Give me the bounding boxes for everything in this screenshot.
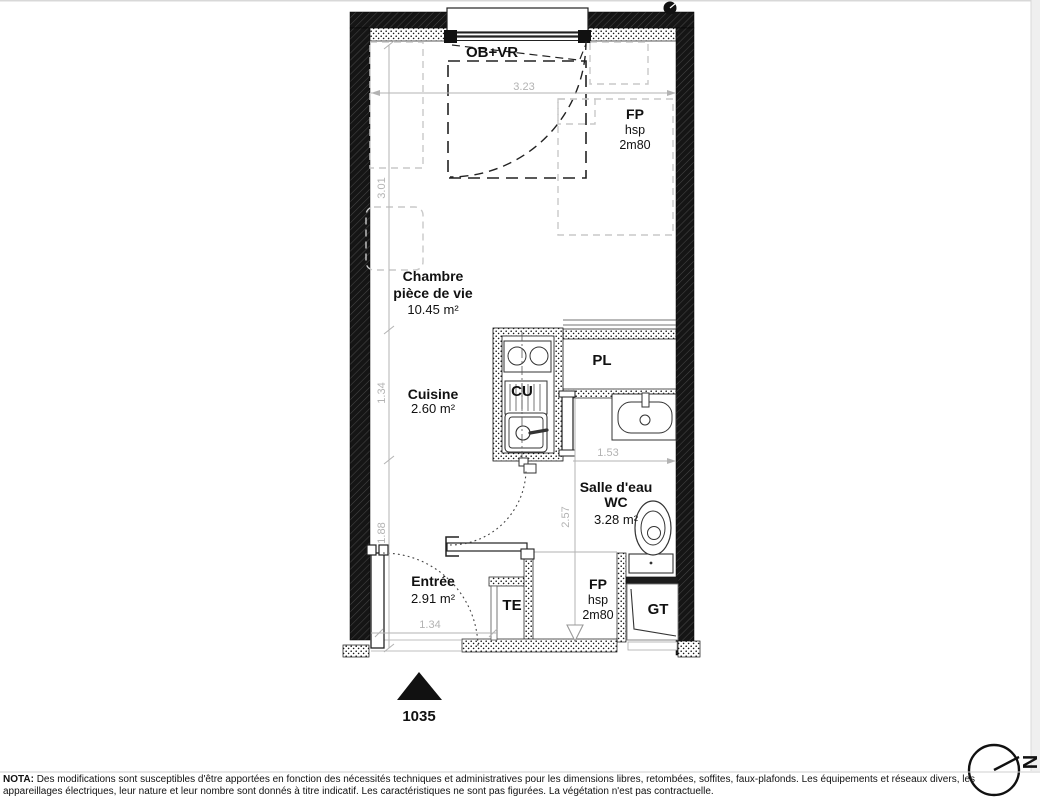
- wall-pl-top: [563, 329, 676, 339]
- room-salle-eau-area: 3.28 m²: [594, 512, 639, 527]
- kitchen-cu-label: CU: [511, 383, 533, 400]
- closet-te-label: TE: [502, 597, 521, 614]
- ceiling-note-lower: FP hsp 2m80: [582, 576, 613, 622]
- compass-needle: [994, 757, 1019, 770]
- faucet-base: [516, 426, 530, 440]
- dim-top: 3.23: [513, 81, 534, 93]
- room-salle-eau-name: Salle d'eau: [580, 479, 653, 495]
- room-cuisine-area: 2.60 m²: [411, 401, 456, 416]
- bathroom-door-leaf-open: [562, 396, 573, 452]
- nota-bold: NOTA:: [3, 774, 34, 785]
- closet-right-outline: [590, 42, 648, 84]
- kitchen-block: CU: [493, 328, 563, 473]
- dim-left-mid: 1.34: [376, 382, 388, 403]
- dim-entree: 1.34: [419, 619, 440, 631]
- bathroom-sink: [612, 393, 676, 440]
- ceiling-note-upper: FP hsp 2m80: [619, 106, 650, 152]
- room-chambre-area: 10.45 m²: [407, 302, 459, 317]
- floor-plan-page: OB+VR PL CU: [0, 0, 1040, 800]
- dim-open-arrow: [567, 625, 583, 641]
- entrance-door-leaf: [371, 553, 384, 648]
- wardrobe-left-outline: [370, 42, 423, 168]
- wall-gt-top: [626, 577, 678, 584]
- dim-bath-depth: 2.57: [560, 506, 572, 527]
- roof-drain-marker: [664, 2, 677, 15]
- closet-te: TE: [491, 586, 522, 640]
- closet-pl: PL: [563, 320, 676, 369]
- wall-top-right: [584, 12, 694, 28]
- sink-drain: [640, 415, 650, 425]
- fp-lower-label: FP: [589, 576, 607, 592]
- closet-gt-label: GT: [648, 601, 669, 618]
- furniture-left-outline: [366, 207, 423, 270]
- dim-left-upper: 3.01: [376, 177, 388, 198]
- wall-te-fp: [524, 551, 533, 645]
- unit-triangle: [397, 672, 442, 700]
- room-cuisine-name: Cuisine: [408, 386, 459, 402]
- window-jamb-right: [578, 30, 591, 43]
- bed-outline: [558, 99, 673, 235]
- unit-marker: 1035: [397, 672, 442, 725]
- nota-text-2: appareillages électriques, leur nature e…: [3, 786, 714, 797]
- dim-bath-width: 1.53: [597, 447, 618, 459]
- room-entree-area: 2.91 m²: [411, 591, 456, 606]
- window-shutter-zone: [448, 61, 586, 178]
- furniture-outlines: [366, 42, 673, 270]
- fp-upper-label: FP: [626, 106, 644, 122]
- pillow-outline: [558, 99, 595, 124]
- closet-gt: GT: [627, 584, 678, 650]
- sink-faucet: [642, 393, 649, 407]
- nota-line-2: appareillages électriques, leur nature e…: [3, 786, 1011, 798]
- closet-pl-label: PL: [592, 352, 611, 369]
- fp-lower-hsp: hsp: [588, 593, 608, 607]
- wall-top-left: [350, 12, 450, 28]
- page-top-edge: [0, 0, 1040, 2]
- window-frame: [447, 8, 588, 32]
- dim-left-lower: 1.88: [376, 522, 388, 543]
- nota-text-1: Des modifications sont susceptibles d'êt…: [34, 774, 975, 785]
- room-chambre-sub: pièce de vie: [393, 285, 473, 301]
- wall-bottom-right-block: [678, 641, 700, 657]
- bathroom-door-bar: [447, 543, 527, 551]
- window-label: OB+VR: [466, 44, 518, 61]
- wall-bottom-left-block: [343, 645, 369, 657]
- nota-line-1: NOTA: Des modifications sont susceptible…: [3, 774, 1011, 786]
- fp-upper-height: 2m80: [619, 138, 650, 152]
- room-salle-eau-sub: WC: [604, 494, 627, 510]
- footer-nota: NOTA: Des modifications sont susceptible…: [3, 774, 1011, 799]
- wall-right: [676, 28, 694, 655]
- wall-fp-gt: [617, 553, 626, 642]
- room-entree-name: Entrée: [411, 573, 455, 589]
- cooktop: [504, 341, 551, 372]
- fp-upper-hsp: hsp: [625, 123, 645, 137]
- page-right-edge: [1031, 0, 1040, 771]
- window-jamb-left: [444, 30, 457, 43]
- wall-bottom: [462, 639, 617, 652]
- compass-north-label: N: [1018, 755, 1040, 769]
- floor-plan-drawing: OB+VR PL CU: [0, 0, 1040, 800]
- fp-lower-height: 2m80: [582, 608, 613, 622]
- unit-number: 1035: [402, 708, 435, 725]
- room-chambre-name: Chambre: [403, 268, 464, 284]
- bathroom-door-swing: [450, 469, 526, 545]
